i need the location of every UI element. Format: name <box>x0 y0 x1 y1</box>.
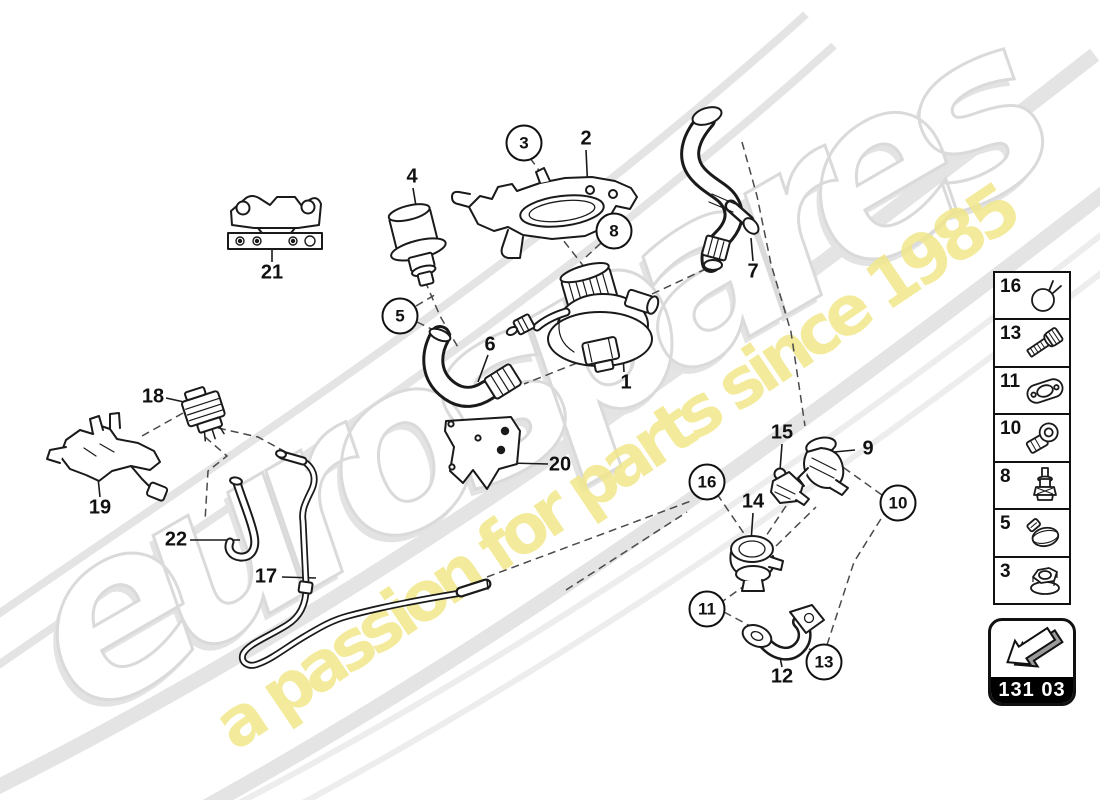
back-arrow-icon <box>991 621 1073 679</box>
hose-clamp-icon <box>1023 513 1067 553</box>
sidebar-item-number: 5 <box>1000 513 1011 535</box>
sidebar-item-3[interactable]: 3 <box>995 558 1069 603</box>
callout-plain-6[interactable]: 6 <box>484 334 495 357</box>
part-12-pipe <box>739 605 824 654</box>
callout-plain-17[interactable]: 17 <box>255 566 277 589</box>
callout-circled-16[interactable]: 16 <box>689 464 726 501</box>
diagram-code-band: 131 03 <box>991 677 1073 703</box>
reference-parts-sidebar: 16131110853 <box>993 271 1071 605</box>
callout-plain-15[interactable]: 15 <box>771 422 793 445</box>
parts-diagram-stage: eurospares eurospares a passion for part… <box>0 0 1100 800</box>
callout-plain-19[interactable]: 19 <box>89 497 111 520</box>
sidebar-item-number: 16 <box>1000 276 1021 298</box>
sidebar-item-16[interactable]: 16 <box>995 273 1069 320</box>
sidebar-item-number: 11 <box>1000 371 1020 393</box>
sidebar-item-number: 8 <box>1000 466 1011 488</box>
callout-plain-18[interactable]: 18 <box>142 386 164 409</box>
sidebar-item-5[interactable]: 5 <box>995 510 1069 557</box>
gasket-icon <box>1023 371 1067 411</box>
sidebar-item-number: 13 <box>1000 323 1021 345</box>
callout-circled-11[interactable]: 11 <box>689 591 726 628</box>
sidebar-item-10[interactable]: 10 <box>995 415 1069 462</box>
flange-bolt-icon <box>1023 323 1067 363</box>
callout-plain-4[interactable]: 4 <box>406 166 417 189</box>
callout-plain-1[interactable]: 1 <box>620 372 631 395</box>
valve-fitting-icon <box>1023 465 1067 505</box>
callout-plain-14[interactable]: 14 <box>742 491 764 514</box>
flange-nut-icon <box>1023 560 1067 600</box>
part-21-bracket <box>228 196 322 249</box>
callout-circled-3[interactable]: 3 <box>506 125 543 162</box>
banjo-bolt-icon <box>1023 418 1067 458</box>
callout-plain-21[interactable]: 21 <box>261 262 283 285</box>
sidebar-item-13[interactable]: 13 <box>995 320 1069 367</box>
diagram-art: eurospares eurospares a passion for part… <box>0 0 1100 800</box>
sidebar-item-number: 10 <box>1000 418 1021 440</box>
diagram-code-box[interactable]: 131 03 <box>988 618 1076 706</box>
hose-clip-icon <box>1023 276 1067 316</box>
sidebar-item-11[interactable]: 11 <box>995 368 1069 415</box>
callout-circled-8[interactable]: 8 <box>596 213 633 250</box>
callout-circled-10[interactable]: 10 <box>880 485 917 522</box>
callout-plain-20[interactable]: 20 <box>549 454 571 477</box>
callout-circled-5[interactable]: 5 <box>382 298 419 335</box>
sidebar-item-number: 3 <box>1000 561 1011 583</box>
callout-plain-12[interactable]: 12 <box>771 666 793 689</box>
part-14-valve <box>730 536 783 591</box>
callout-plain-22[interactable]: 22 <box>165 529 187 552</box>
callout-plain-7[interactable]: 7 <box>747 261 758 284</box>
callout-plain-2[interactable]: 2 <box>580 128 591 151</box>
callout-plain-9[interactable]: 9 <box>862 438 873 461</box>
callout-circled-13[interactable]: 13 <box>806 644 843 681</box>
sidebar-item-8[interactable]: 8 <box>995 463 1069 510</box>
diagram-code: 131 03 <box>998 679 1065 702</box>
